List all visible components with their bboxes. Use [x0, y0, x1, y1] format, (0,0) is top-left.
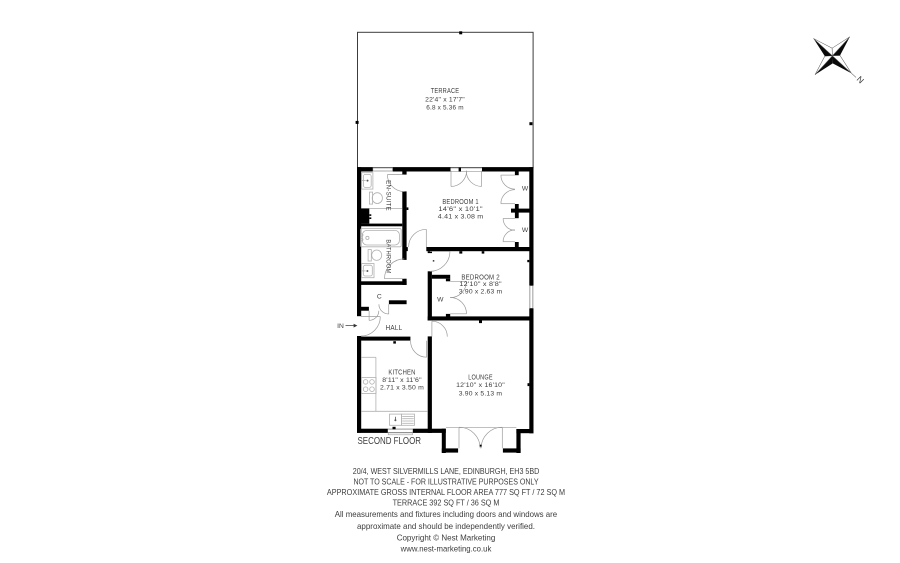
- svg-text:W: W: [437, 296, 444, 303]
- svg-text:TERRACE: TERRACE: [431, 88, 460, 95]
- svg-text:2.71 x 3.50 m: 2.71 x 3.50 m: [380, 385, 424, 392]
- svg-text:approximate and should be inde: approximate and should be independently …: [357, 521, 535, 531]
- svg-text:SECOND FLOOR: SECOND FLOOR: [358, 436, 422, 447]
- svg-text:C: C: [377, 294, 382, 301]
- svg-text:www.nest-marketing.co.uk: www.nest-marketing.co.uk: [400, 543, 492, 553]
- svg-text:W: W: [522, 227, 529, 234]
- svg-text:3.90 x 5.13 m: 3.90 x 5.13 m: [459, 390, 503, 397]
- svg-text:NOT TO SCALE - FOR ILLUSTRATIV: NOT TO SCALE - FOR ILLUSTRATIVE PURPOSES…: [353, 477, 539, 486]
- svg-text:W: W: [522, 186, 529, 193]
- svg-text:BEDROOM 1: BEDROOM 1: [442, 199, 478, 206]
- svg-text:22'4" x 17'7": 22'4" x 17'7": [425, 96, 465, 103]
- svg-text:20/4, WEST SILVERMILLS LANE, E: 20/4, WEST SILVERMILLS LANE, EDINBURGH, …: [353, 467, 540, 476]
- svg-text:BATHROOM: BATHROOM: [384, 239, 391, 273]
- svg-text:12'10" x 16'10": 12'10" x 16'10": [456, 382, 505, 389]
- svg-text:HALL: HALL: [386, 325, 403, 332]
- svg-text:All measurements and fixtures: All measurements and fixtures including …: [335, 509, 558, 519]
- svg-text:TERRACE 392 SQ FT / 36 SQ M: TERRACE 392 SQ FT / 36 SQ M: [393, 498, 500, 507]
- svg-text:KITCHEN: KITCHEN: [388, 370, 415, 377]
- svg-text:12'10" x 8'8": 12'10" x 8'8": [459, 281, 502, 288]
- svg-text:LOUNGE: LOUNGE: [468, 374, 493, 381]
- svg-text:14'6" x 10'1": 14'6" x 10'1": [438, 206, 483, 213]
- svg-text:Copyright © Nest Marketing: Copyright © Nest Marketing: [397, 532, 496, 542]
- svg-text:8'11" x 11'6": 8'11" x 11'6": [382, 377, 422, 384]
- svg-text:IN: IN: [337, 323, 344, 330]
- svg-text:EN-SUITE: EN-SUITE: [384, 180, 391, 211]
- svg-text:4.41 x 3.08 m: 4.41 x 3.08 m: [438, 213, 484, 220]
- svg-text:6.8 x 5.36 m: 6.8 x 5.36 m: [426, 105, 464, 112]
- svg-text:APPROXIMATE GROSS INTERNAL FLO: APPROXIMATE GROSS INTERNAL FLOOR AREA 77…: [327, 488, 565, 497]
- svg-text:3.90 x 2.63 m: 3.90 x 2.63 m: [459, 288, 503, 295]
